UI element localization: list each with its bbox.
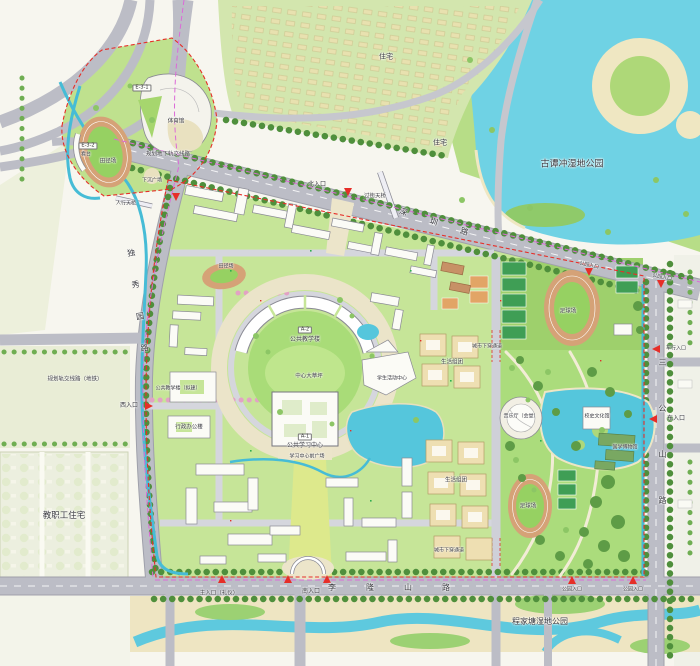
building-label-teaching-planned: 公共教学楼（拟建） <box>155 387 200 392</box>
road-label-lilongshan: 李隆山路 <box>328 584 480 592</box>
building-label-gymnasium: 体育馆 <box>168 119 185 125</box>
road-label-sangongshan: 三公山路 <box>658 358 666 542</box>
building-tag-a2: A-2 <box>298 327 312 334</box>
building-label-admin: 行政办公楼 <box>175 425 203 431</box>
entrance-label-park-3: 公园入口 <box>562 588 582 593</box>
field-label-soccer-ne: 足球场 <box>560 309 577 315</box>
field-label-track-nw: 田径场 <box>100 159 117 165</box>
building-label-student-center: 学生活动中心 <box>377 377 407 382</box>
note-underpass-north: 城市下穿通道 <box>472 345 502 350</box>
note-underpass-south: 城市下穿通道 <box>434 549 464 554</box>
area-label-learning-plaza: 学习中心前广场 <box>289 455 324 460</box>
building-tag-a1: A-1 <box>298 434 312 441</box>
building-label-concert-hall: 音乐厅（会堂） <box>503 415 538 420</box>
entrance-label-park-4: 公园入口 <box>623 588 643 593</box>
building-label-museum: 国学博物馆 <box>612 446 637 451</box>
labels-layer: 深圳路独秀园路三公山路李隆山路古谭冲湿地公园程家塘湿地公园住宅住宅教职工住宅中心… <box>0 0 700 666</box>
area-label-living-cluster-2: 生活组团 <box>445 478 467 484</box>
note-metro-line-west: 规划轨交线路（地铁） <box>47 377 102 383</box>
entrance-label-park-1: 公园入口 <box>579 261 600 270</box>
area-label-living-cluster-1: 生活组团 <box>441 360 463 366</box>
building-label-public-teaching: 公共教学楼 <box>290 337 320 343</box>
area-label-faculty-housing: 教职工住宅 <box>43 512 86 521</box>
building-tag-e32: E-3-2 <box>78 143 97 150</box>
area-label-residence-1: 住宅 <box>379 54 393 61</box>
entrance-label-south: 南入口 <box>302 589 320 595</box>
entrance-label-north: 北入口 <box>308 182 326 188</box>
campus-master-plan: 深圳路独秀园路三公山路李隆山路古谭冲湿地公园程家塘湿地公园住宅住宅教职工住宅中心… <box>0 0 700 666</box>
entrance-label-west: 西入口 <box>120 403 138 409</box>
note-pedestrian-bridge: 人行天桥 <box>116 202 136 207</box>
road-label-duxiuyuan: 独秀园路 <box>126 248 152 376</box>
note-crossing-bridge: 过街天桥 <box>364 194 386 200</box>
building-tag-e31: E-3-1 <box>132 85 151 92</box>
area-label-residence-2: 住宅 <box>433 140 447 147</box>
note-sunken-plaza: 下沉广场 <box>142 179 162 184</box>
note-metro-underground: 规划地下轨交线路 <box>146 152 190 158</box>
building-label-stands: 看台 <box>81 153 91 158</box>
field-label-track-west: 田径场 <box>218 265 233 270</box>
entrance-label-east: 东入口 <box>667 416 685 422</box>
building-label-learning-center: 公共学习中心 <box>287 443 323 449</box>
entrance-label-main: 主入口（礼仪） <box>200 591 239 597</box>
road-label-shenzhen: 深圳路 <box>398 207 492 244</box>
entrance-label-vehicle: 车行入口 <box>666 347 686 352</box>
building-label-history-hall: 校史文化馆 <box>584 415 609 420</box>
entrance-label-park-2: 公园入口 <box>652 273 673 282</box>
park-label-south-wetland: 程家塘湿地公园 <box>512 618 568 626</box>
field-label-soccer-south: 足球场 <box>520 504 537 510</box>
park-label-gutanchong: 古谭冲湿地公园 <box>540 161 603 170</box>
area-label-central-lawn: 中心大草坪 <box>295 374 323 380</box>
